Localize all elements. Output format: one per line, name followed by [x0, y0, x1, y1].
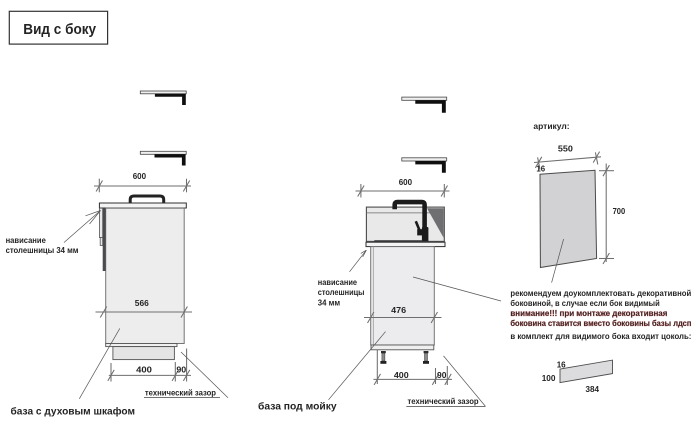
svg-text:16: 16 — [557, 359, 566, 369]
svg-text:столешницы: столешницы — [318, 288, 365, 297]
svg-text:база с духовым шкафом: база с духовым шкафом — [11, 406, 136, 418]
svg-text:600: 600 — [399, 177, 413, 187]
svg-text:технический зазор: технический зазор — [145, 388, 216, 397]
svg-text:в комплект для видимого бока в: в комплект для видимого бока входит цоко… — [510, 332, 691, 341]
svg-text:600: 600 — [133, 171, 147, 181]
svg-text:566: 566 — [135, 298, 149, 308]
svg-text:рекомендуем доукомплектовать д: рекомендуем доукомплектовать декоративно… — [510, 289, 691, 298]
svg-text:16: 16 — [536, 164, 545, 173]
svg-text:база под мойку: база под мойку — [258, 401, 337, 413]
svg-text:артикул:: артикул: — [533, 121, 569, 131]
svg-text:100: 100 — [542, 373, 556, 383]
svg-text:90: 90 — [176, 365, 186, 375]
svg-text:боковина ставится вместо боков: боковина ставится вместо боковины базы л… — [510, 319, 691, 328]
svg-text:34 мм: 34 мм — [318, 298, 340, 307]
svg-text:400: 400 — [394, 370, 409, 380]
svg-text:нависание: нависание — [318, 278, 358, 287]
svg-text:Вид с боку: Вид с боку — [23, 21, 96, 38]
svg-text:внимание!!! при монтаже декора: внимание!!! при монтаже декоративная — [510, 309, 667, 318]
svg-text:столешницы 34 мм: столешницы 34 мм — [6, 246, 79, 255]
svg-text:технический зазор: технический зазор — [408, 397, 479, 406]
svg-text:90: 90 — [437, 370, 447, 380]
svg-text:384: 384 — [586, 384, 600, 394]
svg-text:400: 400 — [136, 365, 152, 375]
svg-text:700: 700 — [613, 206, 626, 216]
svg-text:476: 476 — [391, 305, 406, 315]
svg-text:нависание: нависание — [6, 236, 47, 245]
svg-text:550: 550 — [558, 143, 573, 153]
svg-text:боковиной, в случае если бок в: боковиной, в случае если бок видимый — [510, 299, 659, 308]
